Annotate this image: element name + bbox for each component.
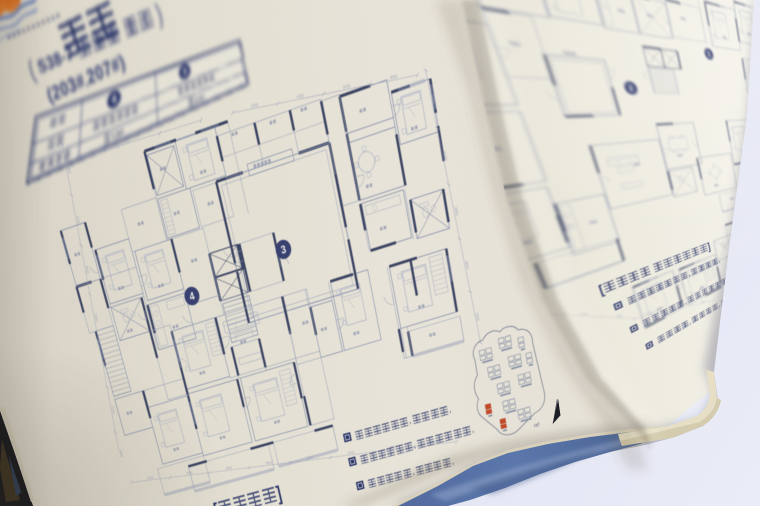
svg-text:3900: 3900 <box>102 360 106 368</box>
svg-text:3300: 3300 <box>66 164 71 174</box>
svg-text:4200: 4200 <box>580 313 588 316</box>
svg-text:4050: 4050 <box>119 450 123 458</box>
svg-text:4200: 4200 <box>754 201 756 205</box>
svg-text:3900: 3900 <box>475 312 480 321</box>
svg-text:3150: 3150 <box>347 450 354 455</box>
svg-text:3600: 3600 <box>266 461 273 465</box>
svg-text:2800: 2800 <box>127 493 131 501</box>
svg-text:3600: 3600 <box>464 260 469 270</box>
svg-text:3000: 3000 <box>85 265 90 274</box>
svg-text:3300: 3300 <box>750 179 752 183</box>
svg-text:3000: 3000 <box>454 206 459 216</box>
svg-text:3300: 3300 <box>147 476 154 480</box>
svg-text:3300: 3300 <box>431 93 436 104</box>
svg-text:4200: 4200 <box>186 471 193 475</box>
svg-text:ref: ref <box>534 422 541 429</box>
svg-text:3000: 3000 <box>616 315 623 318</box>
